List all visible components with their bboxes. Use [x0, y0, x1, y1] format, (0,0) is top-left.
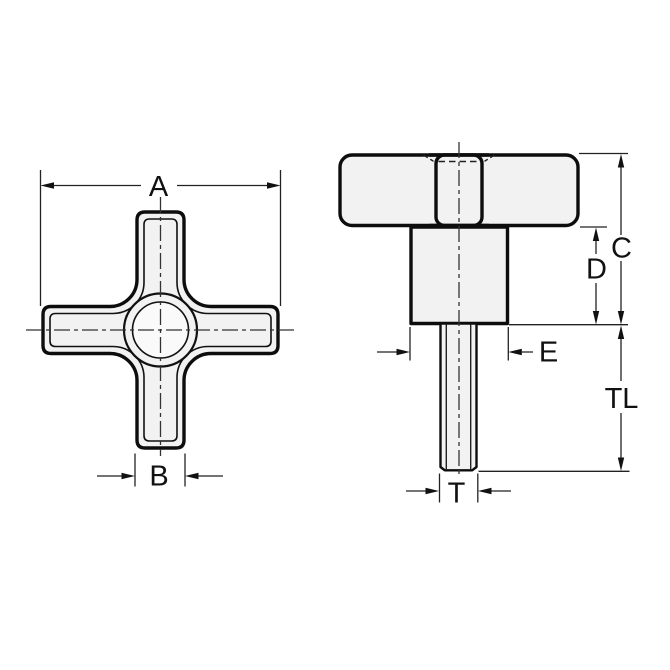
arrowhead-right: [267, 182, 281, 188]
dim-label-C: C: [611, 233, 632, 265]
arrowhead-left: [41, 182, 55, 188]
arrowhead-right: [185, 473, 199, 479]
side-view: C D TL E: [340, 142, 638, 510]
dim-label-B: B: [149, 461, 168, 493]
arrowhead-right: [426, 488, 440, 494]
dim-label-T: T: [448, 478, 466, 510]
arrowhead-down: [593, 311, 599, 325]
arrowhead-down: [618, 458, 624, 472]
arrowhead-left: [508, 349, 522, 355]
dim-label-A: A: [149, 171, 169, 203]
arrowhead-left: [122, 473, 136, 479]
arrowhead-down: [618, 311, 624, 325]
dimension-D: D: [586, 228, 607, 325]
arrowhead-left: [478, 488, 492, 494]
dimension-C: C: [611, 154, 632, 325]
arrowhead-right: [397, 349, 411, 355]
arrowhead-up: [593, 228, 599, 242]
dim-label-TL: TL: [605, 383, 639, 415]
dim-label-E: E: [539, 337, 558, 369]
technical-drawing: A B: [0, 0, 670, 670]
front-view: A B: [26, 170, 295, 493]
dimension-B: B: [97, 454, 223, 493]
dimension-T: T: [406, 474, 511, 510]
drawing-canvas: A B: [0, 0, 670, 670]
arrowhead-up: [618, 326, 624, 340]
dim-label-D: D: [586, 254, 607, 286]
arrowhead-up: [618, 154, 624, 168]
dimension-TL: TL: [605, 326, 639, 472]
